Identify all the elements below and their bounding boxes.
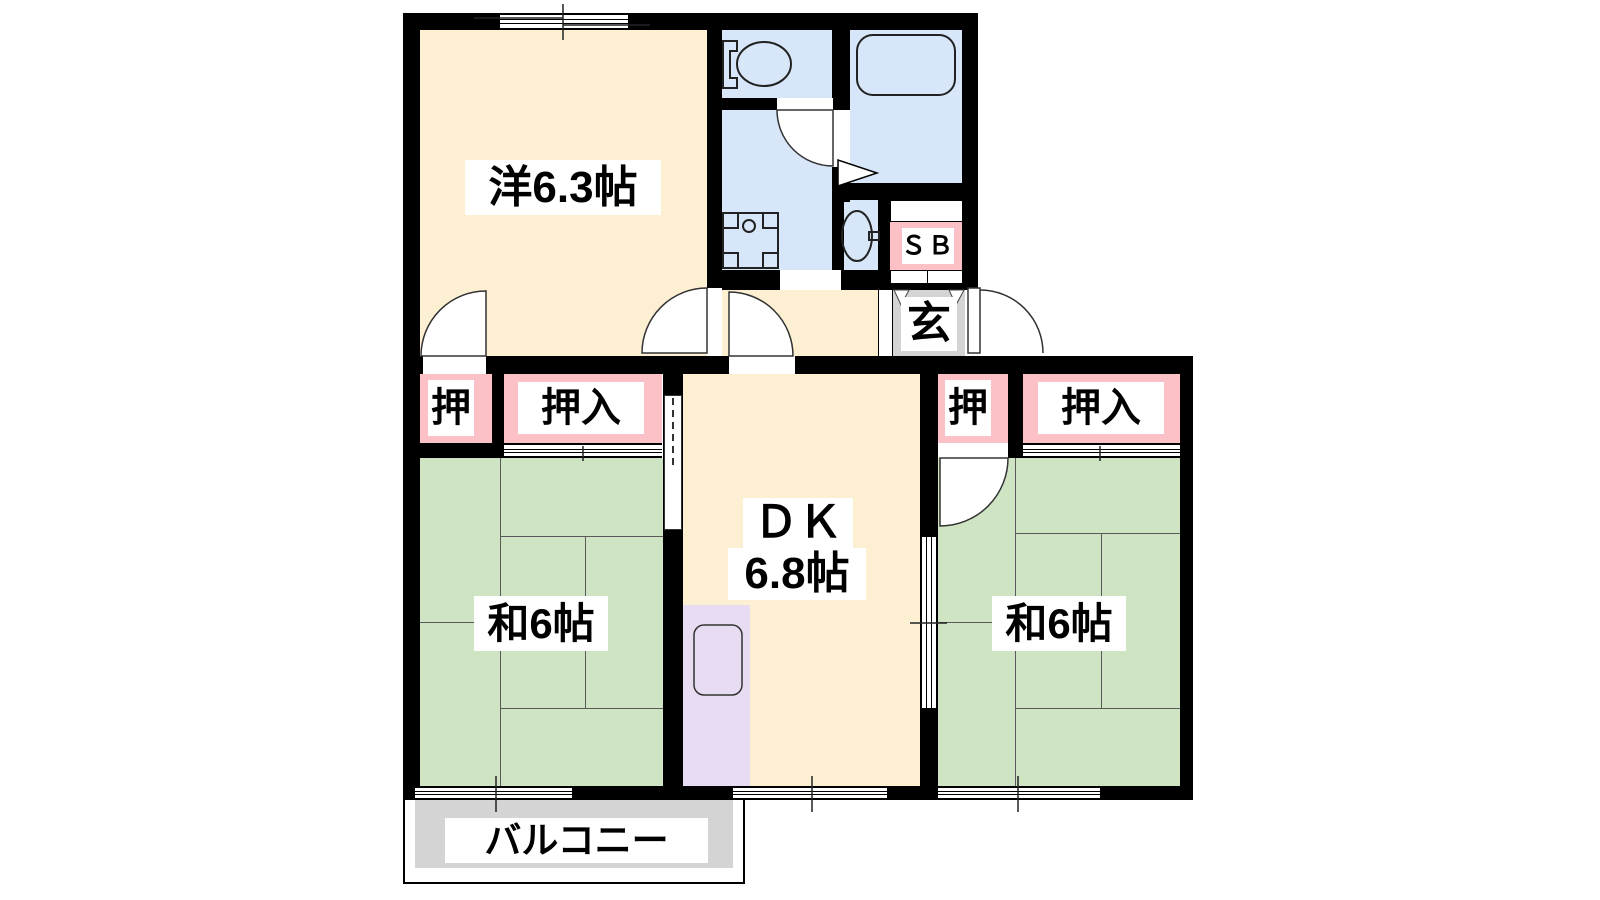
wall bbox=[838, 183, 978, 200]
room-label-dk-size: 6.8帖 bbox=[728, 548, 866, 600]
washbasin-nook bbox=[844, 200, 878, 270]
wall bbox=[403, 356, 1193, 374]
tatami-line bbox=[500, 708, 663, 709]
entrance-label: 玄 bbox=[901, 297, 957, 351]
tatami-line bbox=[1015, 708, 1180, 709]
wall bbox=[403, 13, 978, 30]
room-label-japanese-left: 和6帖 bbox=[474, 596, 608, 651]
door-opening bbox=[707, 288, 722, 356]
tatami-line bbox=[500, 536, 663, 537]
shoe-box-shelf-divider bbox=[927, 270, 928, 284]
room-label-dk: ＤＫ bbox=[743, 498, 853, 548]
closet-label-right: 押入 bbox=[1038, 382, 1164, 434]
door-opening bbox=[423, 356, 486, 374]
floorplan-canvas: 洋6.3帖 ＤＫ 6.8帖 和6帖 和6帖 押 押入 押 押入 ＳＢ 玄 バルコ… bbox=[0, 0, 1600, 900]
hallway bbox=[722, 288, 878, 356]
tatami-line bbox=[1015, 533, 1180, 534]
wall bbox=[722, 98, 777, 110]
door-opening bbox=[832, 110, 850, 167]
window bbox=[733, 786, 887, 800]
window bbox=[500, 13, 628, 30]
wall bbox=[832, 13, 850, 110]
closet-sliding-door bbox=[504, 443, 662, 458]
window bbox=[415, 786, 572, 800]
wall bbox=[890, 284, 965, 290]
wall bbox=[920, 443, 938, 458]
closet-sliding-door bbox=[1023, 443, 1180, 458]
wall bbox=[878, 200, 890, 290]
room-label-japanese-right: 和6帖 bbox=[992, 596, 1126, 651]
window bbox=[938, 786, 1100, 800]
door-opening bbox=[729, 356, 795, 374]
refrigerator-space bbox=[683, 605, 750, 786]
room-washroom bbox=[722, 110, 832, 270]
wall bbox=[403, 13, 420, 800]
wall bbox=[841, 270, 878, 290]
closet-label-compact-right: 押 bbox=[945, 380, 991, 436]
wall bbox=[1180, 356, 1193, 800]
balcony-label: バルコニー bbox=[445, 818, 708, 863]
shoe-box-shelf-top bbox=[890, 200, 965, 222]
door-opening bbox=[938, 443, 1008, 458]
wall bbox=[707, 13, 722, 288]
closet-label-compact-left: 押 bbox=[428, 380, 474, 436]
wall bbox=[492, 374, 504, 443]
door-opening bbox=[777, 98, 833, 110]
door-opening bbox=[780, 270, 841, 290]
room-bath bbox=[850, 28, 962, 183]
wall bbox=[420, 443, 504, 458]
entrance-step-strip bbox=[878, 290, 893, 356]
wall bbox=[962, 13, 978, 290]
sliding-partition bbox=[664, 395, 682, 530]
wall bbox=[1008, 374, 1023, 458]
wall bbox=[832, 200, 844, 272]
wall bbox=[707, 270, 780, 290]
shoe-box-label: ＳＢ bbox=[902, 228, 954, 264]
entrance-door bbox=[968, 288, 1043, 353]
closet-label-left: 押入 bbox=[518, 382, 644, 434]
room-toilet bbox=[722, 28, 832, 98]
sliding-door bbox=[920, 537, 938, 708]
room-label-western: 洋6.3帖 bbox=[465, 160, 661, 215]
